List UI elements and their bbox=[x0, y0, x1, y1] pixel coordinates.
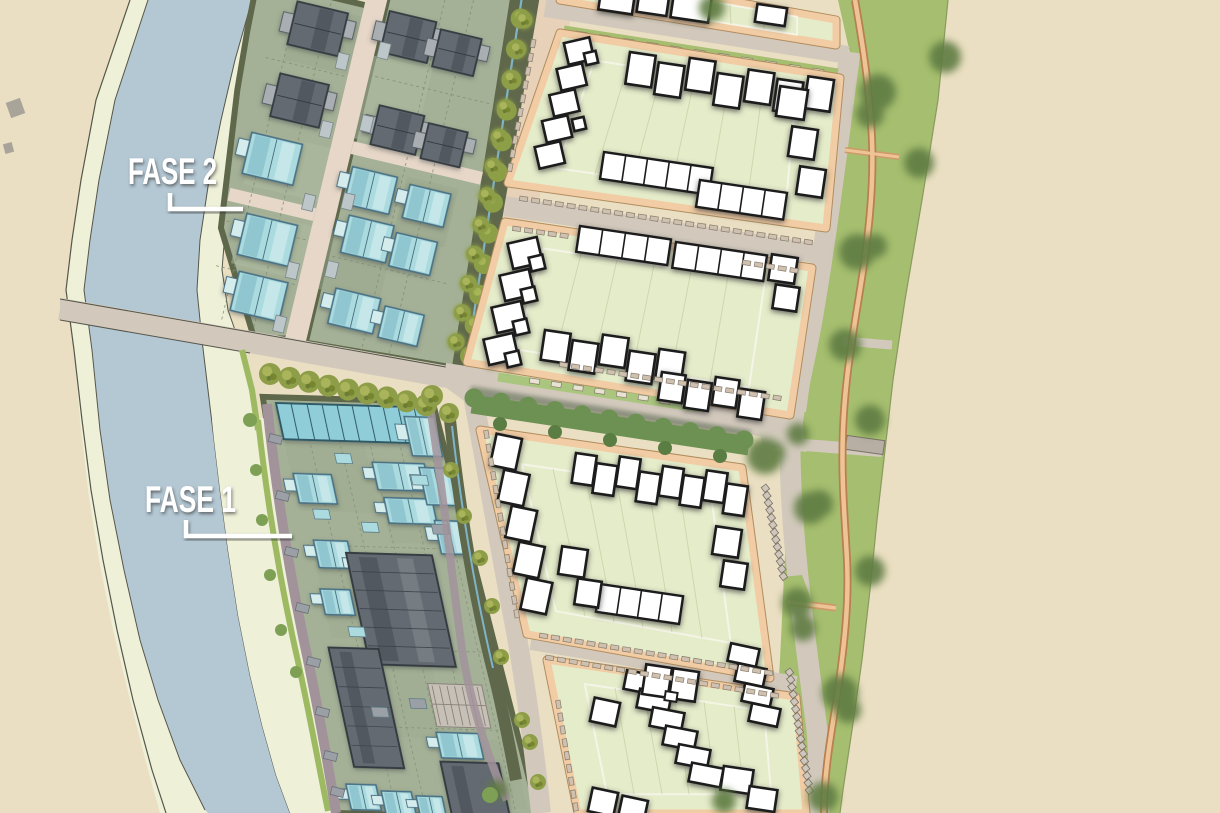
svg-text:FASE 1: FASE 1 bbox=[145, 479, 236, 520]
svg-text:FASE 2: FASE 2 bbox=[128, 151, 217, 192]
